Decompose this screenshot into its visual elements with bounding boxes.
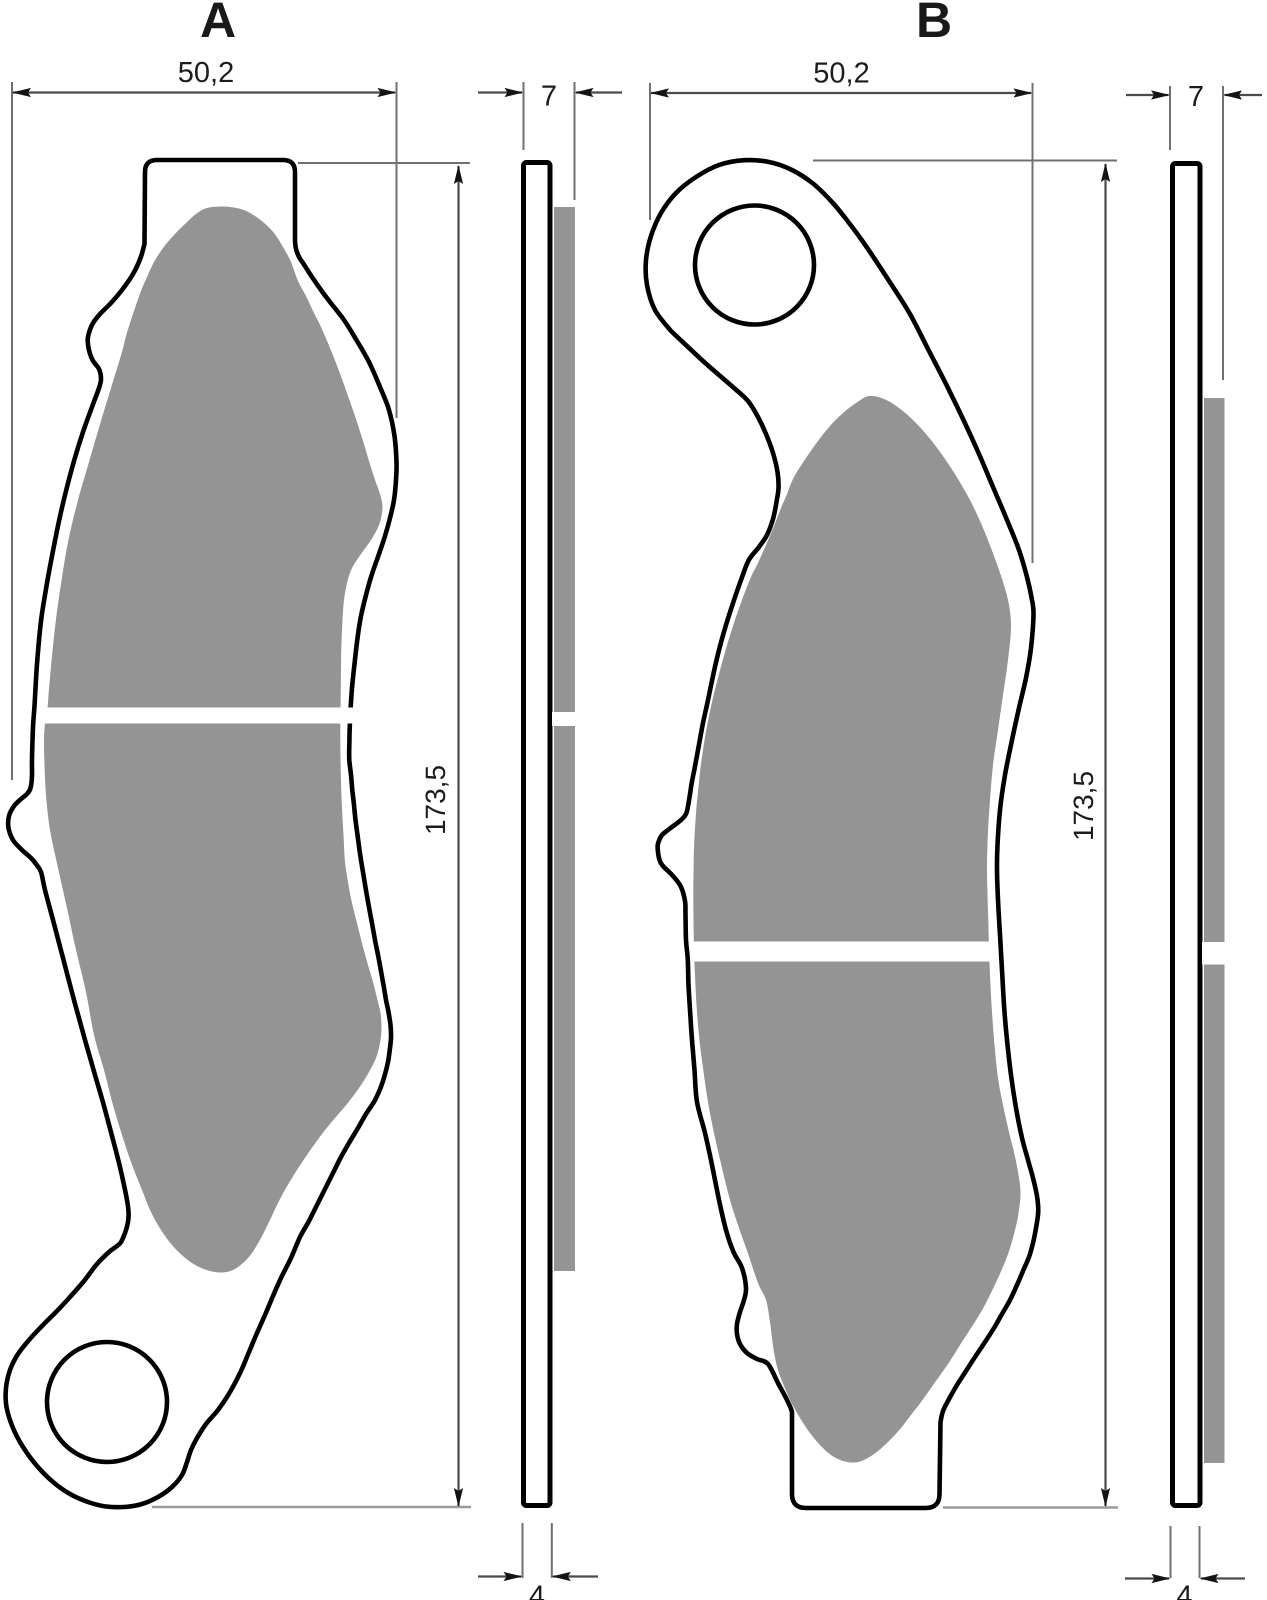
svg-text:50,2: 50,2 <box>178 57 234 89</box>
svg-text:7: 7 <box>1188 81 1204 113</box>
svg-text:A: A <box>200 0 236 48</box>
svg-text:B: B <box>916 0 952 48</box>
svg-text:7: 7 <box>541 81 557 113</box>
svg-text:4: 4 <box>1176 1581 1192 1600</box>
svg-text:4: 4 <box>529 1581 545 1600</box>
svg-text:50,2: 50,2 <box>813 58 869 90</box>
svg-text:173,5: 173,5 <box>420 765 451 835</box>
svg-text:173,5: 173,5 <box>1068 771 1099 841</box>
